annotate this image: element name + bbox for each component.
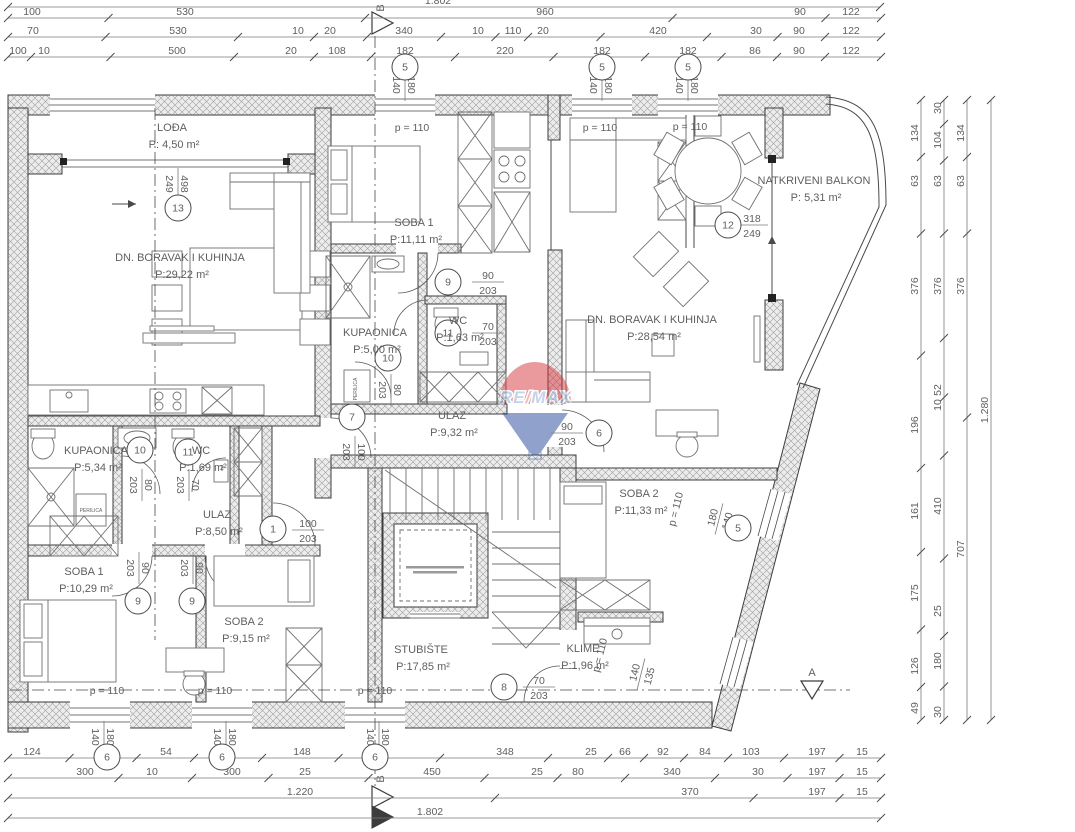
section-marker-a-right: A <box>801 667 823 699</box>
dim-label: 122 <box>842 6 860 18</box>
section-label: A <box>808 667 816 679</box>
parapet-label: p = 110 <box>673 121 708 133</box>
top-windows <box>50 93 718 117</box>
dim-label: 300 <box>76 766 94 778</box>
dim-label: 20 <box>324 25 336 37</box>
opening-mark-number: 12 <box>722 220 734 232</box>
section-marker-b-top: B <box>372 4 393 34</box>
dim-label: 20 <box>537 25 549 37</box>
loggia-parapet <box>28 154 318 174</box>
svg-text:70: 70 <box>482 321 494 333</box>
dim-label: 25 <box>585 746 597 758</box>
opening-mark-number: 10 <box>134 445 146 457</box>
svg-text:90: 90 <box>139 562 151 574</box>
opening-mark-number: 5 <box>735 523 741 535</box>
svg-text:498: 498 <box>178 175 190 193</box>
dim-label: 348 <box>496 746 514 758</box>
svg-text:140: 140 <box>211 728 223 746</box>
room-area: P:10,29 m² <box>59 583 113 595</box>
balcony-arrow-icon <box>768 236 776 268</box>
svg-text:140: 140 <box>627 662 643 682</box>
dim-label: 25 <box>531 766 543 778</box>
opening-dimension: 80203 <box>376 374 403 406</box>
dim-label: 122 <box>842 45 860 57</box>
dim-label: 340 <box>395 25 413 37</box>
dim-label: 52 <box>932 384 944 396</box>
dim-label: 84 <box>699 746 711 758</box>
dim-label: 90 <box>794 6 806 18</box>
room-area: P:17,85 m² <box>396 661 450 673</box>
small-label: PERILICA <box>353 377 359 400</box>
balcony-door-wall <box>765 108 783 370</box>
svg-text:203: 203 <box>530 690 548 702</box>
dim-label: 90 <box>793 45 805 57</box>
svg-text:249: 249 <box>163 175 175 193</box>
svg-text:203: 203 <box>340 443 352 461</box>
small-label: PERILICA <box>80 508 103 514</box>
dim-label: 15 <box>856 786 868 798</box>
opening-mark-number: 1 <box>270 524 276 536</box>
remax-logo-text: RE/MAX <box>500 388 573 407</box>
dim-label: 25 <box>299 766 311 778</box>
dim-label: 530 <box>176 6 194 18</box>
dim-label: 500 <box>168 45 186 57</box>
dim-label: 80 <box>572 766 584 778</box>
svg-text:203: 203 <box>299 533 317 545</box>
dim-label: 1.280 <box>979 397 991 423</box>
room-name: ULAZ <box>203 509 231 521</box>
room-area: P: 4,50 m² <box>149 139 200 151</box>
dim-label: 92 <box>657 746 669 758</box>
dim-label: 220 <box>496 45 514 57</box>
svg-text:203: 203 <box>376 381 388 399</box>
dim-label: 30 <box>750 25 762 37</box>
parapet-label: p = 110 <box>583 122 618 134</box>
room-area: P:9,15 m² <box>222 633 270 645</box>
dim-label: 126 <box>909 657 921 675</box>
room-name: SOBA 2 <box>224 616 263 628</box>
room-area: P:29,22 m² <box>155 269 209 281</box>
svg-text:203: 203 <box>124 559 136 577</box>
room-area: P:11,11 m² <box>390 234 443 246</box>
room-name: KUPAONICA <box>64 445 129 457</box>
dim-label: 376 <box>909 277 921 295</box>
opening-mark-number: 8 <box>501 682 507 694</box>
dim-label: 197 <box>808 786 826 798</box>
opening-mark-number: 9 <box>445 277 451 289</box>
dim-label: 63 <box>955 175 967 187</box>
svg-text:203: 203 <box>178 559 190 577</box>
dim-label: 25 <box>932 605 944 617</box>
dim-label: 70 <box>27 25 39 37</box>
opening-mark-number: 6 <box>596 428 602 440</box>
opening-mark-number: 5 <box>685 62 691 74</box>
svg-text:90: 90 <box>482 270 494 282</box>
svg-text:203: 203 <box>558 436 576 448</box>
svg-text:90: 90 <box>193 562 205 574</box>
dim-label: 10 <box>472 25 484 37</box>
section-label: B <box>375 4 387 11</box>
opening-mark-number: 9 <box>189 596 195 608</box>
opening-mark-number: 5 <box>599 62 605 74</box>
room-name: STUBIŠTE <box>394 643 448 656</box>
room-name: WC <box>192 445 210 457</box>
opening-dimension: 90203 <box>472 270 504 297</box>
dim-label: 134 <box>955 124 967 142</box>
dim-label: 108 <box>328 45 346 57</box>
room-name: SOBA 2 <box>619 488 658 500</box>
opening-dimension: 80203 <box>127 469 154 501</box>
bottom-windows <box>70 700 405 730</box>
room-area: P:11,33 m² <box>615 505 668 517</box>
loggia-arrow-icon <box>112 200 136 208</box>
svg-text:90: 90 <box>561 421 573 433</box>
svg-text:318: 318 <box>743 213 761 225</box>
opening-mark-number: 7 <box>349 412 355 424</box>
room-name: KUPAONICA <box>343 327 408 339</box>
dim-label: 340 <box>663 766 681 778</box>
dim-label: 370 <box>681 786 699 798</box>
room-area: P:9,32 m² <box>430 427 478 439</box>
parapet-label: p = 110 <box>358 685 393 697</box>
dim-label: 110 <box>505 25 522 37</box>
dim-label: 66 <box>619 746 631 758</box>
dim-label: 420 <box>649 25 667 37</box>
dim-label: 15 <box>856 766 868 778</box>
opening-mark-number: 13 <box>172 203 184 215</box>
floor-plan-page: B B A RE/MAX 1.8021005309609012270530102… <box>0 0 1075 832</box>
section-marker-b-bottom: B <box>372 775 393 828</box>
opening-dimension: 140135 <box>625 656 659 694</box>
dim-label: 161 <box>909 502 921 520</box>
dim-label: 1.220 <box>287 786 313 798</box>
dim-label: 10 <box>38 45 50 57</box>
dim-label: 30 <box>932 706 944 718</box>
svg-text:249: 249 <box>743 228 761 240</box>
parapet-label: p = 110 <box>198 685 233 697</box>
dim-label: 49 <box>909 702 921 714</box>
svg-text:180: 180 <box>226 728 238 746</box>
svg-text:203: 203 <box>479 285 497 297</box>
svg-text:140: 140 <box>364 728 376 746</box>
dim-label: 197 <box>808 746 826 758</box>
room-name: NATKRIVENI BALKON <box>758 175 871 187</box>
dim-label: 10 <box>292 25 304 37</box>
dim-label: 10 <box>146 766 158 778</box>
svg-text:140: 140 <box>89 728 101 746</box>
dim-label: 90 <box>793 25 805 37</box>
svg-text:203: 203 <box>174 476 186 494</box>
svg-text:80: 80 <box>142 479 154 491</box>
dim-label: 86 <box>749 45 761 57</box>
parapet-label: p = 110 <box>666 491 686 528</box>
dim-label: 180 <box>932 652 944 670</box>
room-name: WC <box>449 315 467 327</box>
svg-text:180: 180 <box>705 507 721 527</box>
svg-text:70: 70 <box>189 479 201 491</box>
room-name: SOBA 1 <box>394 217 433 229</box>
room-name: DN. BORAVAK I KUHINJA <box>587 314 717 326</box>
opening-mark-number: 6 <box>104 752 110 764</box>
dim-label: 707 <box>955 540 967 558</box>
dim-label: 30 <box>752 766 764 778</box>
dim-label: 960 <box>536 6 554 18</box>
svg-text:100: 100 <box>299 518 317 530</box>
dim-label: 450 <box>423 766 441 778</box>
dim-label: 100 <box>9 45 27 57</box>
room-name: DN. BORAVAK I KUHINJA <box>115 252 245 264</box>
room-area: P: 5,31 m² <box>791 192 842 204</box>
dim-label: 20 <box>285 45 297 57</box>
dim-label: 376 <box>932 277 944 295</box>
dim-label: 122 <box>842 25 860 37</box>
elevator-shaft <box>383 513 488 620</box>
svg-text:203: 203 <box>127 476 139 494</box>
furniture-right-apartment <box>560 116 762 644</box>
dim-label: 15 <box>856 746 868 758</box>
dim-label: 530 <box>169 25 187 37</box>
floor-plan-canvas: B B A RE/MAX 1.8021005309609012270530102… <box>0 0 1075 832</box>
dim-label: 1.802 <box>417 806 443 818</box>
dim-label: 103 <box>742 746 760 758</box>
dim-label: 148 <box>293 746 311 758</box>
svg-text:70: 70 <box>533 675 545 687</box>
dim-label: 63 <box>909 175 921 187</box>
dim-label: 196 <box>909 416 921 434</box>
dim-label: 54 <box>160 746 172 758</box>
room-name: ULAZ <box>438 410 466 422</box>
room-area: P:1,63 m² <box>436 332 484 344</box>
section-label: B <box>375 775 387 782</box>
dim-label: 63 <box>932 175 944 187</box>
dim-label: 100 <box>23 6 41 18</box>
room-area: P:8,50 m² <box>195 526 243 538</box>
dim-label: 134 <box>909 124 921 142</box>
opening-mark-number: 6 <box>219 752 225 764</box>
dim-label: 197 <box>808 766 826 778</box>
svg-text:180: 180 <box>104 728 116 746</box>
room-name: SOBA 1 <box>64 566 103 578</box>
opening-mark-number: 9 <box>135 596 141 608</box>
dim-label: 104 <box>932 131 944 149</box>
parapet-label: p = 110 <box>90 685 125 697</box>
dim-label: 376 <box>955 277 967 295</box>
opening-mark-number: 5 <box>402 62 408 74</box>
svg-text:180: 180 <box>379 728 391 746</box>
dim-label: 124 <box>23 746 41 758</box>
dim-label: 10 <box>932 399 944 411</box>
dim-label: 1.802 <box>425 0 451 7</box>
small-label: 2 <box>220 465 224 472</box>
room-name: LOĐA <box>157 122 188 134</box>
room-area: P:5,34 m² <box>74 462 122 474</box>
parapet-label: p = 110 <box>395 122 430 134</box>
room-area: P:28,54 m² <box>627 331 681 343</box>
dim-label: 30 <box>932 102 944 114</box>
svg-text:135: 135 <box>642 666 658 686</box>
dim-label: 175 <box>909 584 921 602</box>
dim-label: 410 <box>932 497 944 515</box>
svg-text:100: 100 <box>355 443 367 461</box>
room-area: P:5,00 m² <box>353 344 401 356</box>
opening-mark-number: 6 <box>372 752 378 764</box>
svg-text:80: 80 <box>391 384 403 396</box>
opening-dimension: 70203 <box>523 675 555 702</box>
